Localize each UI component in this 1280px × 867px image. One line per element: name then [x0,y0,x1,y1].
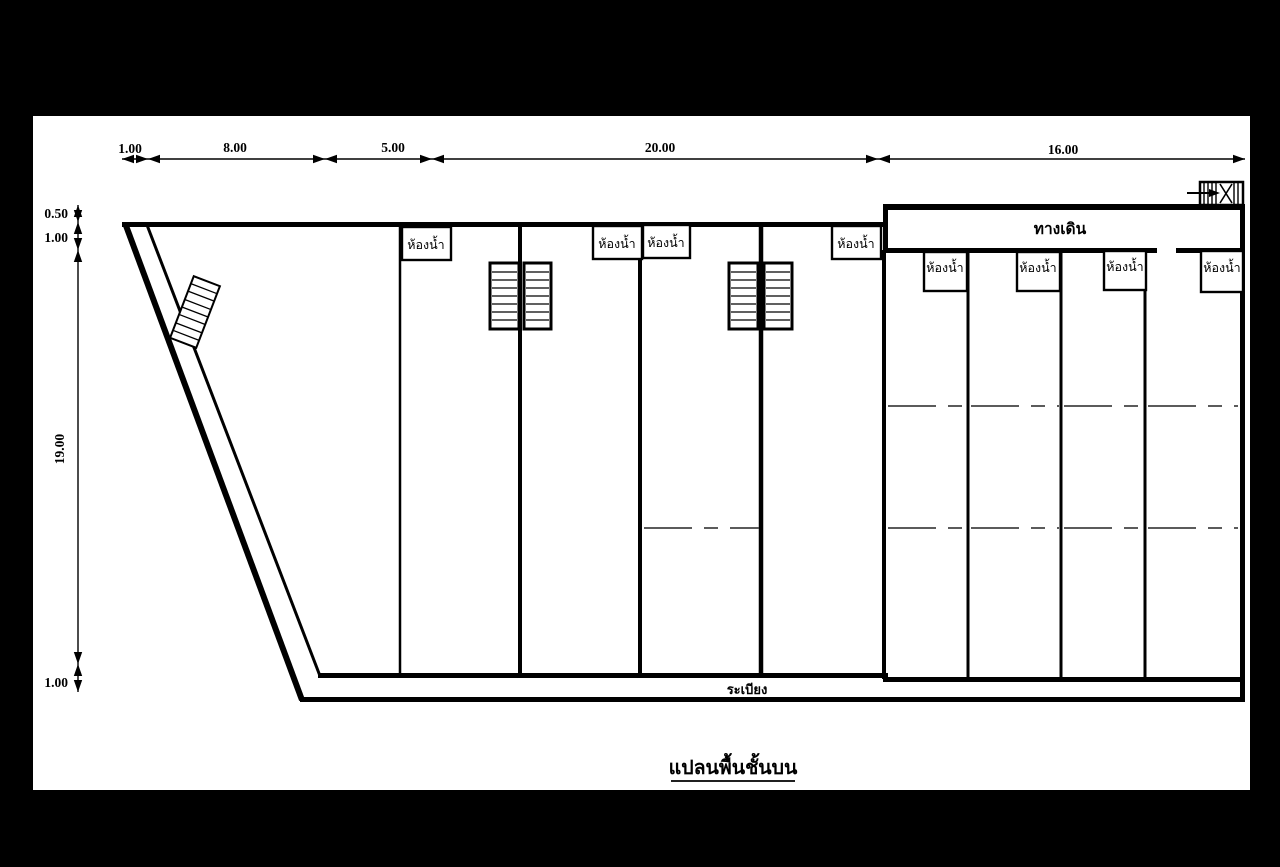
bottom-wall-right [883,677,1243,682]
bathroom-box: ห้องน้ำ [924,252,967,291]
bathroom-label: ห้องน้ำ [1106,257,1143,274]
stairs-mid-1 [490,263,551,329]
bathroom-box: ห้องน้ำ [1104,251,1146,290]
balcony-outer-wall [300,697,1245,702]
top-wall [122,222,888,227]
balcony-label: ระเบียง [727,682,768,697]
corridor-label: ทางเดิน [1034,220,1087,238]
corridor-left-wall [883,204,888,253]
bathroom-label: ห้องน้ำ [407,235,444,252]
dim-top-20: 20.00 [645,140,676,155]
bathroom-box: ห้องน้ำ [593,226,642,259]
dim-top-16: 16.00 [1048,142,1079,157]
bathroom-label: ห้องน้ำ [598,234,635,251]
bathroom-label: ห้องน้ำ [647,233,684,250]
dim-left-100-bottom: 1.00 [44,675,68,690]
bathroom-label: ห้องน้ำ [926,258,963,275]
bathroom-box: ห้องน้ำ [1017,252,1060,291]
bathroom-label: ห้องน้ำ [1019,258,1056,275]
dim-left-050: 0.50 [44,206,68,221]
floor-plan-page: 1.00 8.00 5.00 20.00 16.00 0.50 1.00 19.… [0,0,1280,867]
bathroom-box: ห้องน้ำ [402,227,451,260]
bathroom-box: ห้องน้ำ [1201,251,1243,292]
dim-top-1: 1.00 [118,141,142,156]
bathroom-box: ห้องน้ำ [832,226,881,259]
bathroom-box: ห้องน้ำ [643,225,690,258]
bathroom-label: ห้องน้ำ [837,234,874,251]
bathroom-label: ห้องน้ำ [1203,258,1240,275]
dim-top-5: 5.00 [381,140,405,155]
dim-left-100-top: 1.00 [44,230,68,245]
bottom-wall-left [318,673,888,678]
floor-plan-drawing: 1.00 8.00 5.00 20.00 16.00 0.50 1.00 19.… [0,0,1280,867]
dim-top-8: 8.00 [223,140,247,155]
corridor-top-wall [883,204,1245,210]
dim-left-1900: 19.00 [52,434,67,465]
